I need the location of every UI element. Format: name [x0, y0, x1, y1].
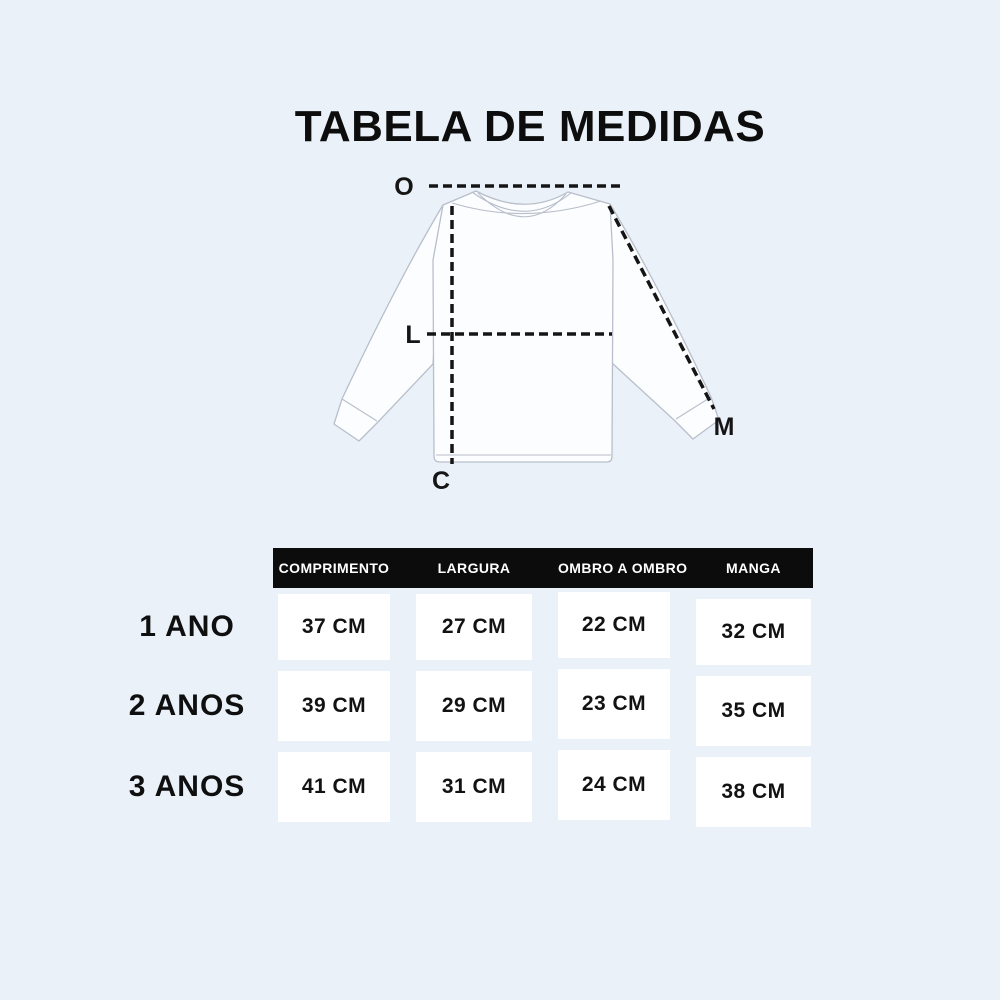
- column-header-largura: LARGURA: [416, 560, 532, 576]
- measure-label-shoulder: O: [394, 173, 413, 201]
- table-cell: 29 CM: [416, 671, 532, 741]
- table-cell: 38 CM: [696, 757, 811, 827]
- table-header: COMPRIMENTO LARGURA OMBRO A OMBRO MANGA: [273, 548, 813, 588]
- column-header-ombro-a-ombro: OMBRO A OMBRO: [558, 560, 670, 576]
- shirt-left-sleeve: [334, 205, 443, 441]
- shirt-right-sleeve: [610, 204, 719, 439]
- table-cell: 22 CM: [558, 592, 670, 658]
- table-cell: 41 CM: [278, 752, 390, 822]
- row-label-1-ano: 1 ANO: [107, 594, 267, 660]
- table-cell: 24 CM: [558, 750, 670, 820]
- table-cell: 27 CM: [416, 594, 532, 660]
- table-cell: 39 CM: [278, 671, 390, 741]
- page-title: TABELA DE MEDIDAS: [60, 103, 1000, 151]
- column-header-manga: MANGA: [696, 560, 811, 576]
- shirt-figure: O L C M: [300, 160, 750, 510]
- measure-label-sleeve: M: [714, 413, 735, 441]
- measure-label-width: L: [405, 321, 420, 349]
- table-cell: 31 CM: [416, 752, 532, 822]
- size-chart-page: TABELA DE MEDIDAS O L C M: [0, 0, 1000, 1000]
- row-label-3-anos: 3 ANOS: [107, 752, 267, 822]
- measure-label-length: C: [432, 467, 450, 495]
- row-labels: 1 ANO 2 ANOS 3 ANOS: [107, 594, 267, 822]
- measurement-cells: 37 CM 27 CM 22 CM 32 CM 39 CM 29 CM 23 C…: [278, 594, 811, 822]
- shirt-illustration: O L C M: [300, 160, 750, 510]
- table-cell: 23 CM: [558, 669, 670, 739]
- shirt-body: [433, 191, 613, 462]
- table-cell: 37 CM: [278, 594, 390, 660]
- table-cell: 32 CM: [696, 599, 811, 665]
- row-label-2-anos: 2 ANOS: [107, 671, 267, 741]
- column-header-comprimento: COMPRIMENTO: [278, 560, 390, 576]
- table-cell: 35 CM: [696, 676, 811, 746]
